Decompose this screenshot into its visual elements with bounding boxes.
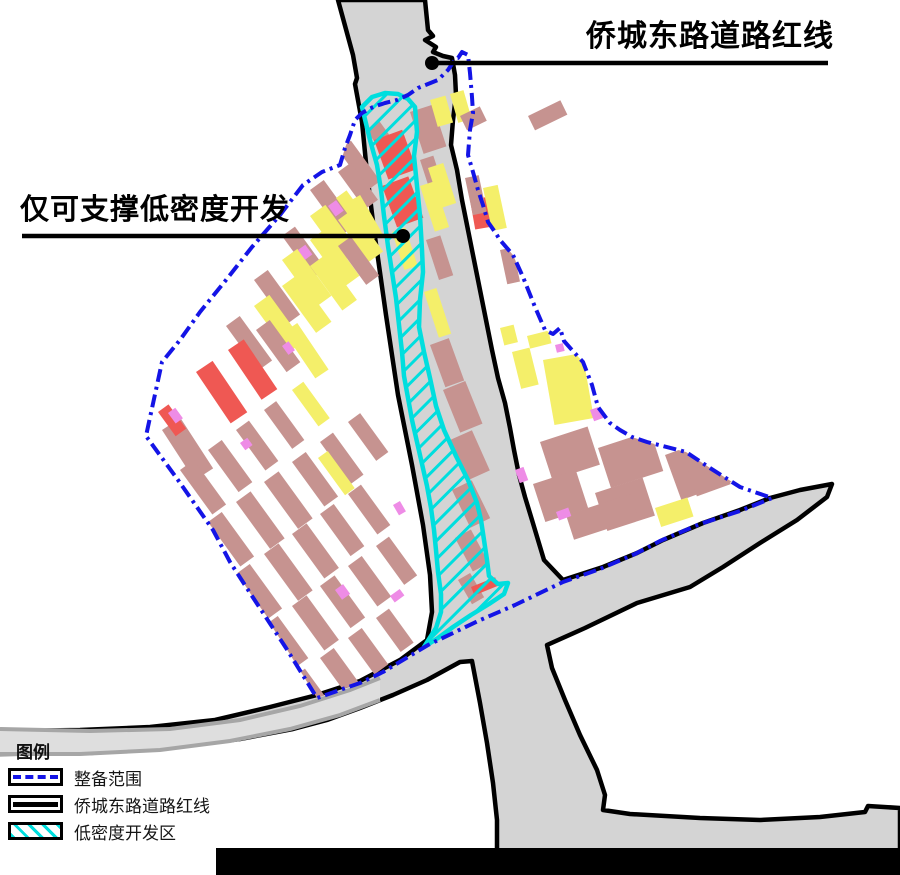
building-footprint [393, 501, 406, 515]
legend-item-label: 整备范围 [74, 765, 142, 790]
legend-item-label: 侨城东路道路红线 [74, 792, 210, 817]
building-footprint [376, 609, 414, 652]
building-footprint [390, 589, 404, 603]
building-footprint [348, 556, 391, 606]
building-footprint [292, 595, 339, 650]
building-footprint [320, 504, 364, 556]
building-footprint [500, 325, 518, 346]
planning-map-screenshot: 侨城东路道路红线 仅可支撑低密度开发 图例 整备范围 侨城东路道路红线 低密度开… [0, 0, 900, 875]
building-footprint [348, 628, 388, 674]
legend: 整备范围 侨城东路道路红线 低密度开发区 [8, 768, 210, 840]
building-footprint [208, 512, 254, 566]
building-footprint [543, 353, 594, 425]
building-footprint [527, 331, 551, 349]
building-footprint [555, 343, 565, 353]
building-footprint [376, 537, 417, 585]
legend-item-label: 低密度开发区 [74, 819, 176, 844]
road-redline-leader-dot [425, 56, 439, 70]
black-line-icon [13, 802, 58, 807]
map-canvas [0, 0, 900, 875]
road-redline-callout-label: 侨城东路道路红线 [586, 22, 834, 52]
low-density-leader-dot [396, 229, 410, 243]
building-footprint [196, 361, 247, 424]
building-footprint [512, 348, 539, 389]
west-road-band [0, 678, 380, 754]
building-footprint [528, 100, 567, 130]
building-footprint [236, 564, 282, 618]
legend-item-road-redline: 侨城东路道路红线 [8, 795, 210, 813]
building-footprint [655, 497, 694, 527]
low-density-callout-label: 仅可支撑低密度开发 [20, 196, 290, 225]
building-footprint [348, 485, 390, 535]
legend-title: 图例 [16, 738, 50, 763]
legend-item-boundary: 整备范围 [8, 768, 210, 786]
building-footprint [264, 401, 304, 449]
blue-dash-icon [13, 775, 58, 779]
building-footprint [598, 431, 663, 488]
bottom-black-bar [216, 848, 900, 875]
legend-item-low-density-zone: 低密度开发区 [8, 822, 210, 840]
building-footprint [292, 382, 330, 427]
map-svg [0, 0, 900, 875]
building-footprint [348, 413, 388, 461]
road-redline-swatch [8, 795, 63, 813]
building-footprint [292, 523, 339, 578]
boundary-dashed-swatch [8, 768, 63, 786]
building-footprint [320, 575, 365, 628]
cyan-hatch-swatch [8, 822, 63, 840]
